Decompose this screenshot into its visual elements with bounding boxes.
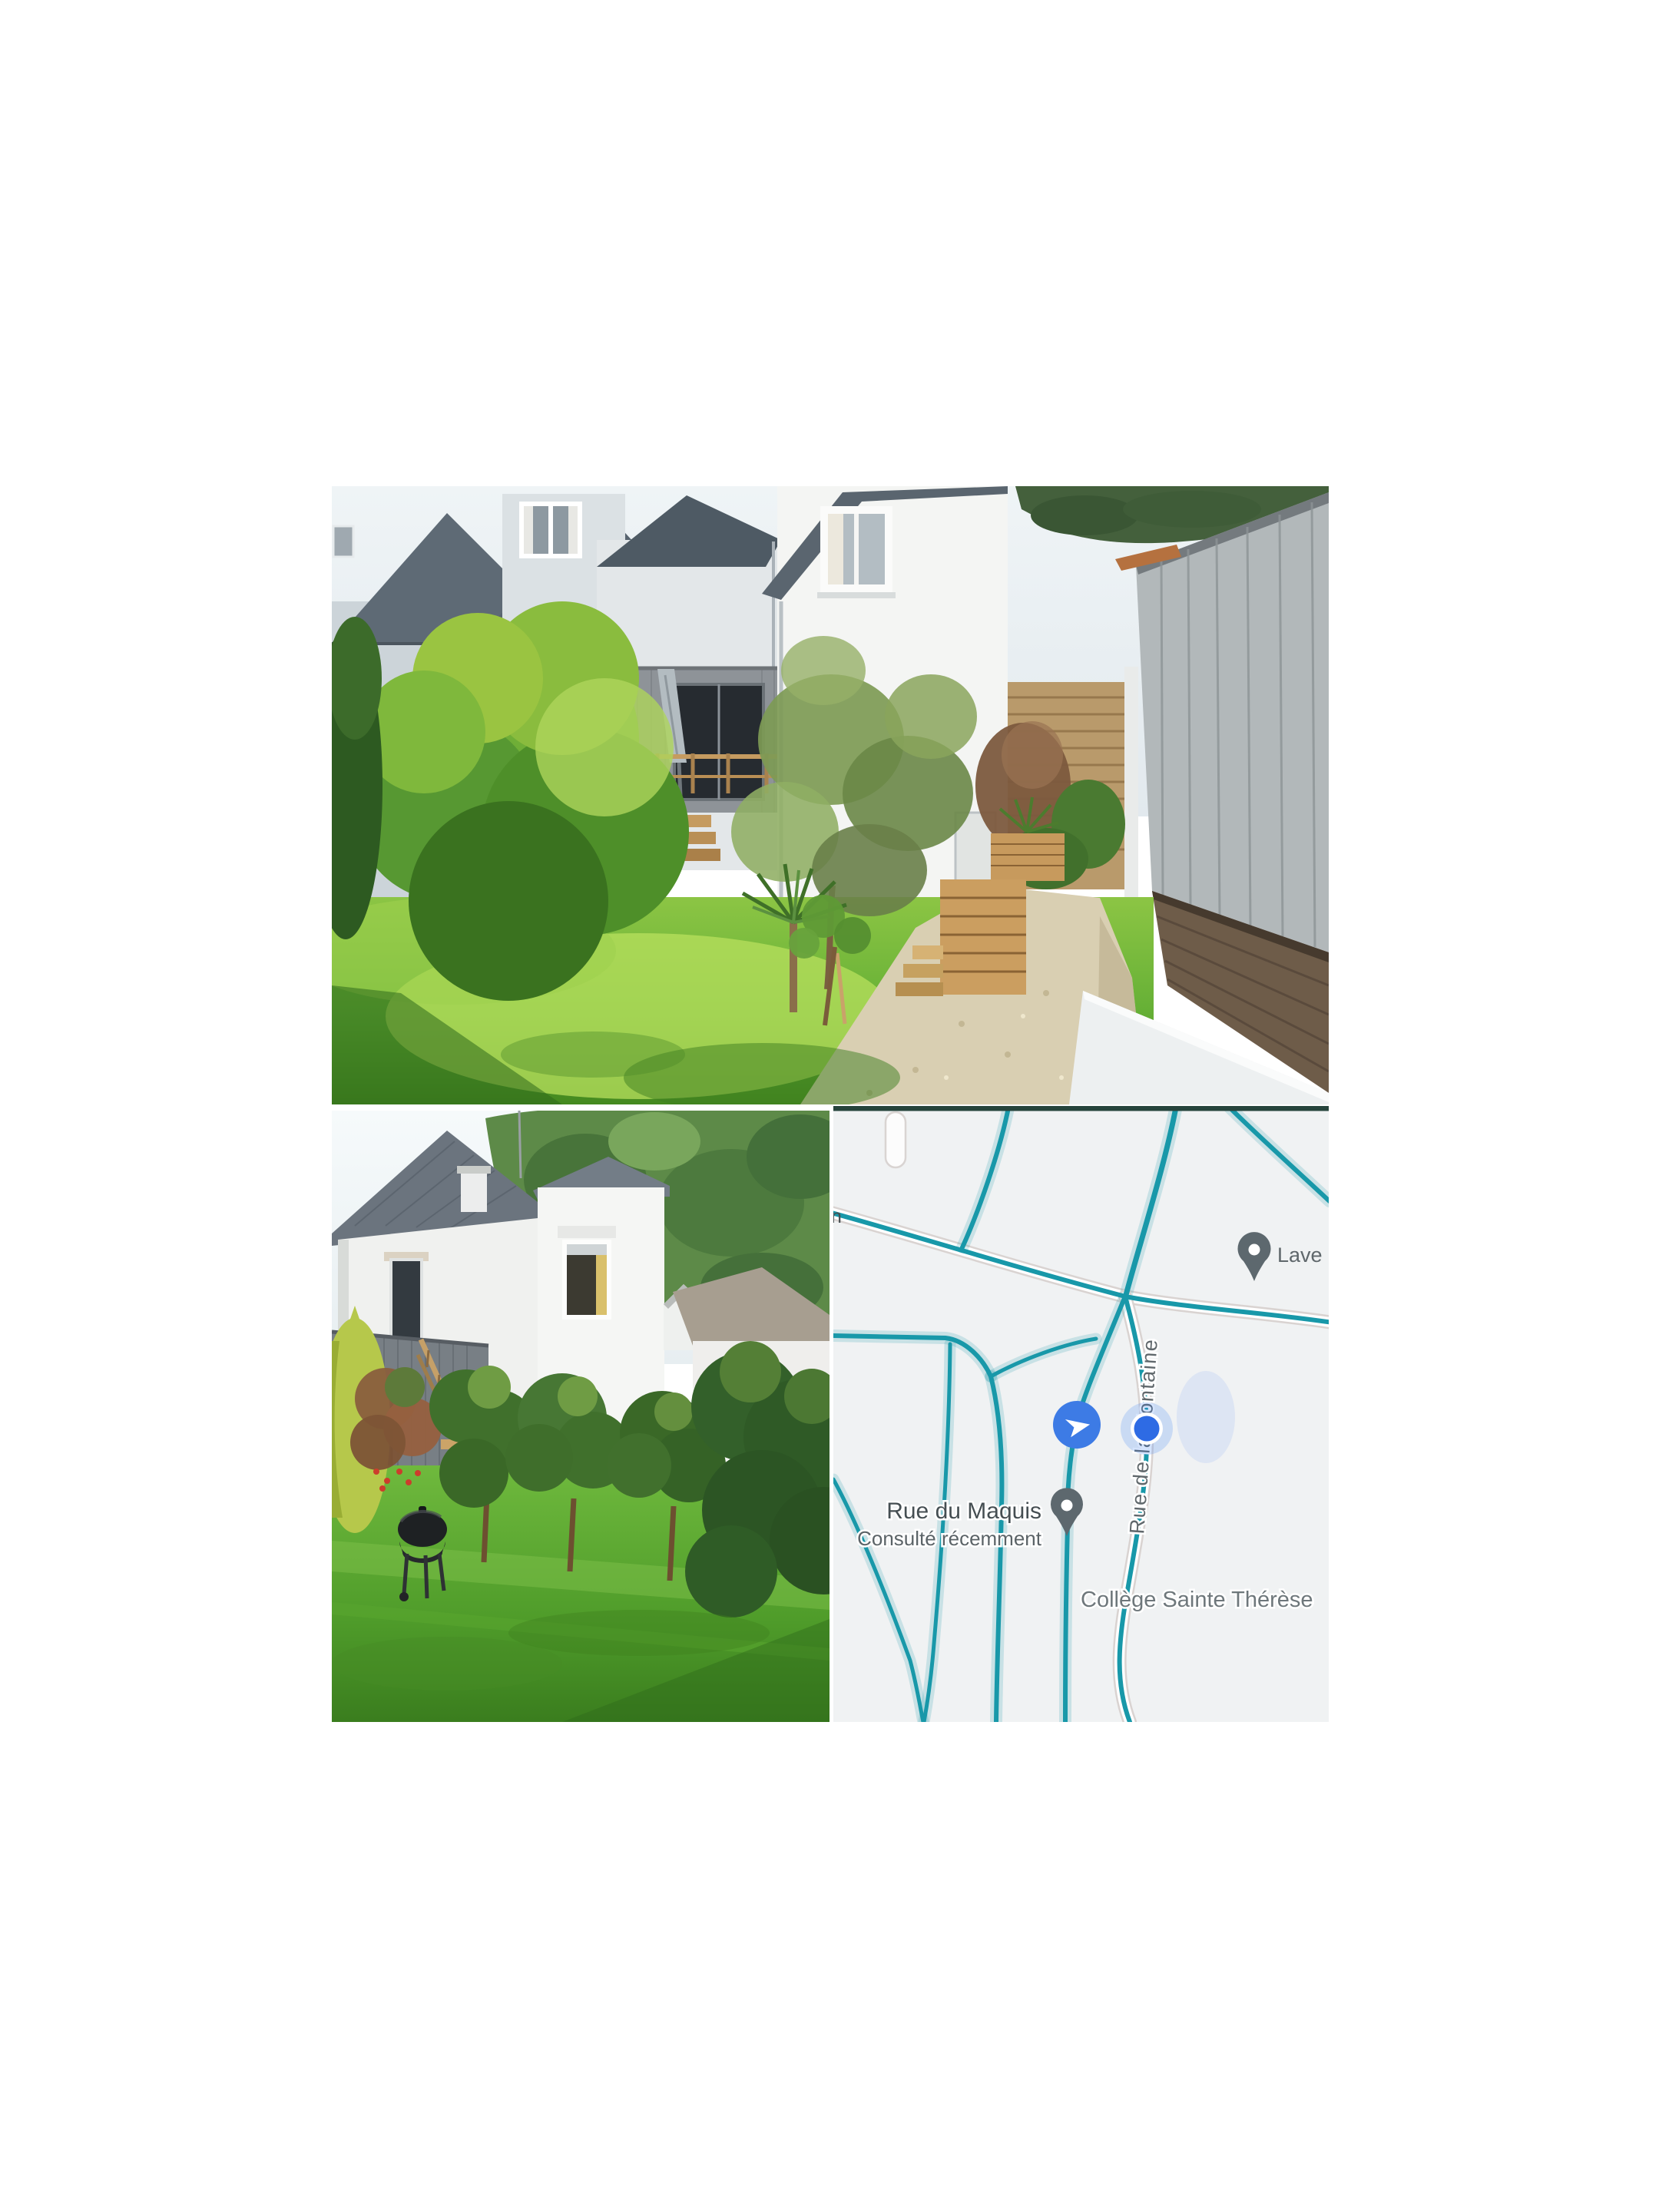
map-label-maquis-title: Rue du Maquis (886, 1498, 1041, 1524)
page: n Rue de la Fontaine Lave (0, 0, 1659, 2212)
map-label-college: Collège Sainte Thérèse (1081, 1588, 1313, 1612)
map-label-maquis-subtitle: Consulté récemment (857, 1527, 1042, 1550)
chimney (461, 1171, 487, 1212)
concrete-fence (1115, 492, 1329, 952)
antenna (519, 1111, 521, 1178)
map-street-fragment: n (833, 1206, 842, 1227)
map-screenshot: n Rue de la Fontaine Lave (833, 1106, 1329, 1722)
dead-end-road (886, 1112, 906, 1167)
photo-garden-back (332, 486, 1329, 1104)
center-window (562, 1240, 611, 1320)
photo-garden-house (332, 1111, 829, 1722)
garden-house-illustration (332, 1111, 829, 1722)
map-label-lave: Lave (1277, 1243, 1323, 1267)
navigation-arrow-icon (1053, 1401, 1101, 1449)
white-house-window (817, 506, 896, 598)
garden-back-illustration (332, 486, 1329, 1104)
map-illustration: n Rue de la Fontaine Lave (833, 1106, 1329, 1722)
tall-window (391, 1260, 422, 1346)
